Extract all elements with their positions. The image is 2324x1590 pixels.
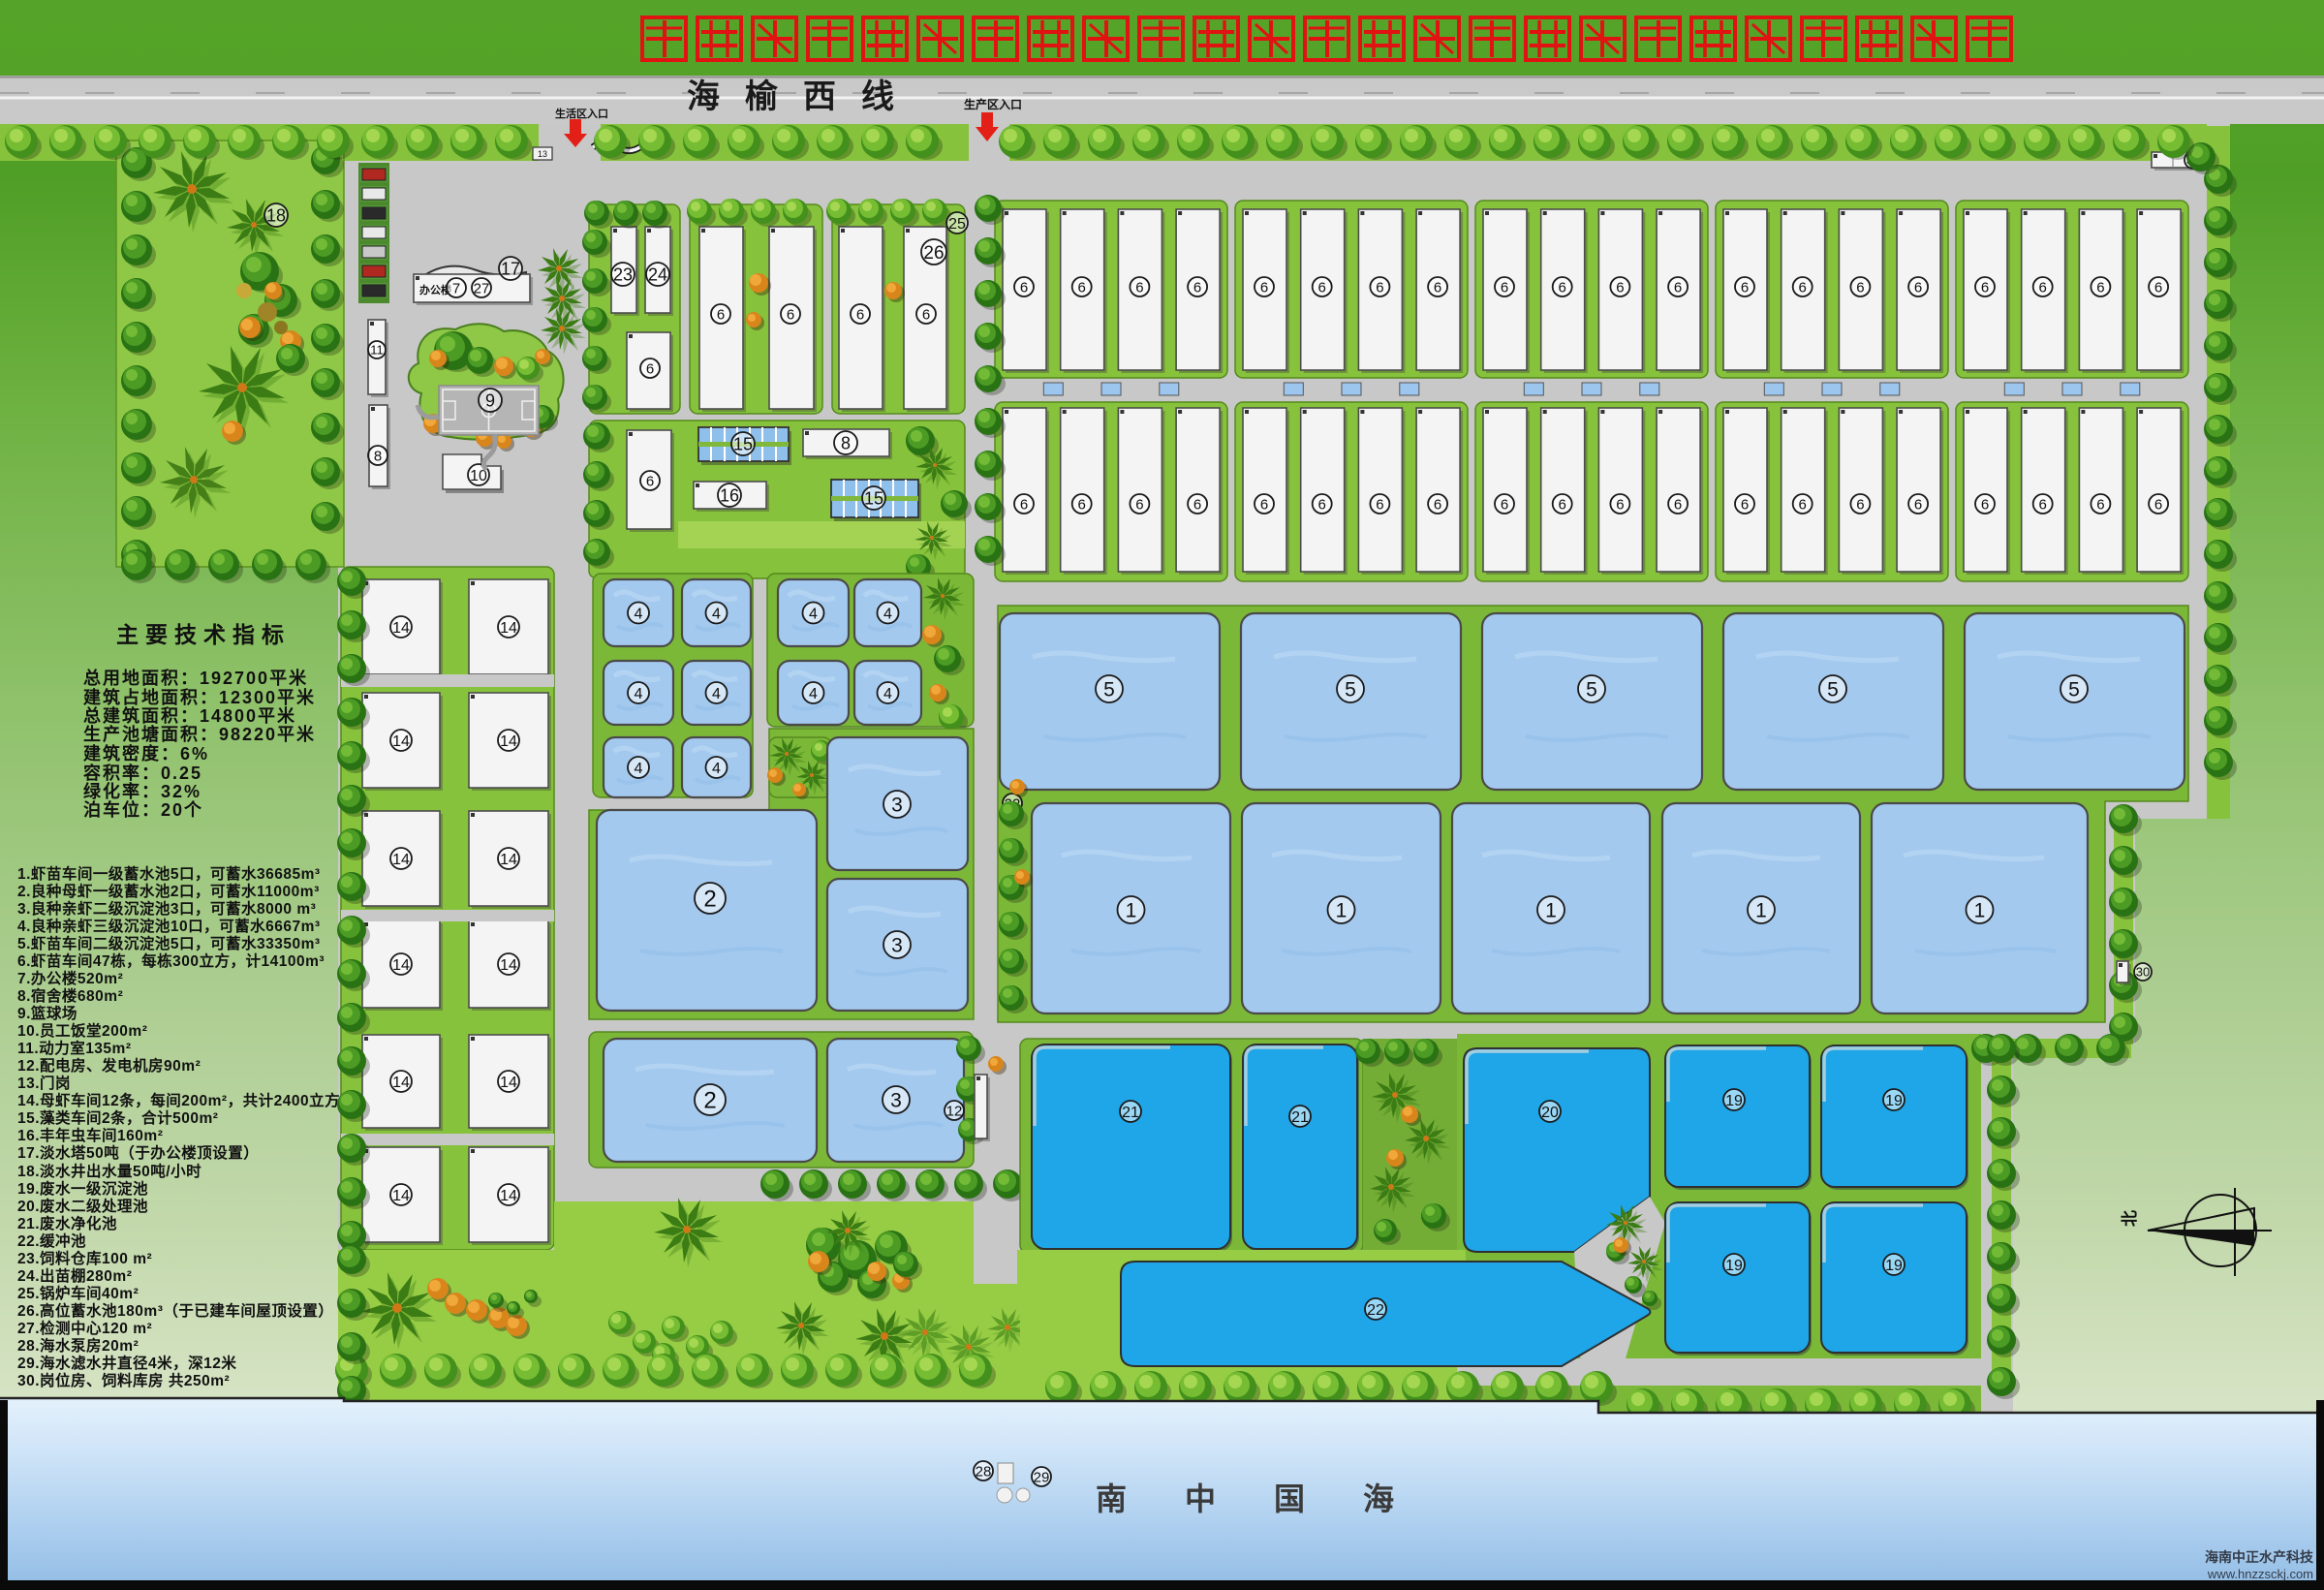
svg-text:6: 6 (1856, 279, 1864, 296)
svg-text:6: 6 (1914, 496, 1922, 513)
svg-text:建筑占地面积：12300平米: 建筑占地面积：12300平米 (83, 687, 316, 707)
svg-text:17: 17 (501, 260, 520, 279)
svg-text:14: 14 (392, 957, 410, 974)
svg-text:4: 4 (712, 606, 721, 622)
svg-text:14: 14 (500, 620, 517, 637)
svg-text:1: 1 (1126, 900, 1137, 922)
svg-text:6: 6 (1741, 496, 1749, 513)
svg-text:14: 14 (500, 733, 517, 750)
svg-text:1: 1 (1336, 900, 1348, 922)
svg-text:30.岗位房、饲料库房 共250m²: 30.岗位房、饲料库房 共250m² (17, 1371, 230, 1389)
svg-text:2: 2 (703, 1088, 716, 1114)
svg-text:14: 14 (392, 620, 410, 637)
svg-text:24.出苗棚280m²: 24.出苗棚280m² (17, 1266, 132, 1285)
svg-text:21: 21 (1122, 1105, 1139, 1121)
svg-text:容积率：0.25: 容积率：0.25 (83, 763, 202, 783)
svg-text:总用地面积：192700平米: 总用地面积：192700平米 (83, 668, 308, 688)
svg-text:6: 6 (1799, 279, 1807, 296)
svg-text:19: 19 (1885, 1258, 1903, 1274)
svg-text:建筑密度：6%: 建筑密度：6% (83, 743, 209, 764)
svg-text:6: 6 (1135, 496, 1143, 513)
svg-text:6: 6 (1616, 279, 1624, 296)
svg-text:25: 25 (948, 216, 966, 233)
svg-text:14: 14 (500, 852, 517, 868)
svg-text:2: 2 (703, 887, 716, 913)
svg-text:6: 6 (2154, 496, 2162, 513)
svg-text:16.丰年虫车间160m²: 16.丰年虫车间160m² (17, 1126, 163, 1144)
svg-text:15: 15 (864, 489, 883, 509)
svg-text:6: 6 (1501, 496, 1508, 513)
svg-text:14.母虾车间12条，每间200m²，共计2400立方: 14.母虾车间12条，每间200m²，共计2400立方 (17, 1091, 340, 1109)
svg-text:6: 6 (1020, 496, 1028, 513)
svg-text:6: 6 (787, 306, 794, 323)
svg-text:总建筑面积：14800平米: 总建筑面积：14800平米 (83, 705, 296, 726)
svg-text:6: 6 (2096, 279, 2104, 296)
svg-text:北: 北 (2121, 1210, 2139, 1227)
svg-text:6: 6 (1674, 496, 1682, 513)
svg-text:3: 3 (890, 1090, 902, 1112)
svg-text:6: 6 (856, 306, 864, 323)
svg-text:13: 13 (538, 149, 547, 159)
svg-text:14: 14 (392, 733, 410, 750)
svg-text:6: 6 (1193, 496, 1201, 513)
svg-text:南中国海: 南中国海 (1096, 1481, 1452, 1516)
svg-text:25.锅炉车间40m²: 25.锅炉车间40m² (17, 1284, 139, 1302)
svg-text:16: 16 (720, 486, 739, 506)
svg-text:20: 20 (1541, 1105, 1559, 1121)
svg-text:6: 6 (1078, 279, 1086, 296)
svg-text:4: 4 (635, 606, 643, 622)
svg-text:15: 15 (733, 435, 753, 454)
svg-text:6: 6 (1193, 279, 1201, 296)
svg-text:7: 7 (452, 280, 460, 296)
svg-text:1.虾苗车间一级蓄水池5口，可蓄水36685m³: 1.虾苗车间一级蓄水池5口，可蓄水36685m³ (17, 864, 321, 883)
svg-text:24: 24 (648, 265, 667, 285)
svg-text:8.宿舍楼680m²: 8.宿舍楼680m² (17, 986, 123, 1005)
svg-text:4: 4 (809, 606, 818, 622)
svg-text:6: 6 (2096, 496, 2104, 513)
svg-text:6: 6 (1318, 496, 1326, 513)
svg-text:6: 6 (2154, 279, 2162, 296)
svg-text:2.良种母虾一级蓄水池2口，可蓄水11000m³: 2.良种母虾一级蓄水池2口，可蓄水11000m³ (17, 882, 320, 900)
svg-text:6: 6 (1376, 496, 1383, 513)
svg-text:11: 11 (370, 343, 384, 358)
svg-text:27: 27 (474, 280, 490, 296)
svg-text:4: 4 (635, 686, 643, 702)
svg-text:23: 23 (613, 265, 633, 285)
svg-text:17.淡水塔50吨（于办公楼顶设置）: 17.淡水塔50吨（于办公楼顶设置） (17, 1143, 259, 1162)
svg-text:3.良种亲虾二级沉淀池3口，可蓄水8000 m³: 3.良种亲虾二级沉淀池3口，可蓄水8000 m³ (17, 899, 316, 918)
svg-text:19.废水一级沉淀池: 19.废水一级沉淀池 (17, 1179, 148, 1198)
svg-text:海南中正水产科技: 海南中正水产科技 (2205, 1549, 2314, 1565)
svg-text:6: 6 (1616, 496, 1624, 513)
svg-text:9.篮球场: 9.篮球场 (17, 1004, 77, 1022)
svg-text:5: 5 (1103, 679, 1115, 701)
svg-text:泊车位：20个: 泊车位：20个 (83, 799, 203, 820)
svg-text:www.hnzzsckj.com: www.hnzzsckj.com (2207, 1567, 2313, 1581)
svg-text:5: 5 (1827, 679, 1839, 701)
svg-text:14: 14 (500, 1075, 517, 1091)
svg-text:26: 26 (923, 243, 944, 264)
svg-text:绿化率：32%: 绿化率：32% (83, 781, 201, 801)
svg-text:1: 1 (1755, 900, 1767, 922)
svg-text:12: 12 (946, 1103, 963, 1119)
svg-text:6: 6 (1981, 279, 1989, 296)
svg-text:6: 6 (1020, 279, 1028, 296)
svg-text:6: 6 (1318, 279, 1326, 296)
svg-text:6: 6 (1260, 496, 1268, 513)
svg-text:4: 4 (883, 606, 892, 622)
svg-text:22.缓冲池: 22.缓冲池 (17, 1231, 86, 1250)
svg-text:15.藻类车间2条，合计500m²: 15.藻类车间2条，合计500m² (17, 1108, 218, 1127)
svg-text:10.员工饭堂200m²: 10.员工饭堂200m² (17, 1021, 147, 1040)
svg-text:生产池塘面积：98220平米: 生产池塘面积：98220平米 (83, 724, 316, 744)
svg-text:14: 14 (392, 1188, 410, 1204)
svg-text:6: 6 (1135, 279, 1143, 296)
svg-text:3: 3 (891, 795, 903, 817)
svg-text:1: 1 (1974, 900, 1986, 922)
svg-text:5: 5 (2068, 679, 2080, 701)
svg-text:28: 28 (976, 1463, 992, 1480)
svg-text:14: 14 (500, 957, 517, 974)
svg-text:6: 6 (922, 306, 930, 323)
svg-text:12.配电房、发电机房90m²: 12.配电房、发电机房90m² (17, 1056, 201, 1075)
svg-text:6: 6 (1741, 279, 1749, 296)
svg-text:4: 4 (712, 761, 721, 777)
svg-text:30: 30 (2136, 965, 2150, 980)
svg-text:6: 6 (1434, 279, 1441, 296)
svg-text:1: 1 (1545, 900, 1557, 922)
svg-text:主要技术指标: 主要技术指标 (116, 622, 291, 647)
svg-text:6: 6 (1856, 496, 1864, 513)
svg-text:21.废水净化池: 21.废水净化池 (17, 1214, 117, 1232)
svg-text:6: 6 (1434, 496, 1441, 513)
svg-text:6: 6 (1501, 279, 1508, 296)
svg-text:3: 3 (891, 935, 903, 957)
svg-text:14: 14 (392, 852, 410, 868)
svg-text:5: 5 (1586, 679, 1597, 701)
svg-text:生产区入口: 生产区入口 (964, 97, 1022, 111)
svg-text:海榆西线: 海榆西线 (687, 78, 919, 115)
svg-text:4: 4 (635, 761, 643, 777)
svg-text:14: 14 (500, 1188, 517, 1204)
svg-text:6: 6 (1078, 496, 1086, 513)
svg-text:生活区入口: 生活区入口 (555, 107, 608, 120)
svg-text:6: 6 (1260, 279, 1268, 296)
svg-text:9: 9 (485, 391, 495, 411)
svg-text:20.废水二级处理池: 20.废水二级处理池 (17, 1197, 148, 1215)
svg-text:8: 8 (374, 448, 382, 464)
svg-text:6: 6 (717, 306, 725, 323)
svg-text:27.检测中心120 m²: 27.检测中心120 m² (17, 1319, 152, 1337)
svg-text:4.良种亲虾三级沉淀池10口，可蓄水6667m³: 4.良种亲虾三级沉淀池10口，可蓄水6667m³ (17, 917, 321, 935)
svg-text:11.动力室135m²: 11.动力室135m² (17, 1039, 132, 1057)
svg-text:6: 6 (2039, 496, 2047, 513)
svg-text:7.办公楼520m²: 7.办公楼520m² (17, 969, 123, 987)
svg-text:6: 6 (646, 473, 654, 489)
svg-text:6: 6 (646, 360, 654, 377)
svg-text:29.海水滤水井直径4米，深12米: 29.海水滤水井直径4米，深12米 (17, 1354, 236, 1372)
svg-text:19: 19 (1725, 1258, 1743, 1274)
svg-text:6: 6 (1376, 279, 1383, 296)
svg-text:6: 6 (1559, 496, 1566, 513)
svg-text:6.虾苗车间47栋，每栋300立方，计14100m³: 6.虾苗车间47栋，每栋300立方，计14100m³ (17, 951, 325, 970)
svg-text:5: 5 (1345, 679, 1356, 701)
svg-text:6: 6 (1674, 279, 1682, 296)
svg-text:19: 19 (1885, 1093, 1903, 1109)
svg-text:23.饲料仓库100 m²: 23.饲料仓库100 m² (17, 1249, 152, 1267)
svg-text:28.海水泵房20m²: 28.海水泵房20m² (17, 1336, 139, 1355)
svg-text:13.门岗: 13.门岗 (17, 1074, 71, 1092)
svg-text:6: 6 (1799, 496, 1807, 513)
svg-text:4: 4 (712, 686, 721, 702)
svg-text:8: 8 (841, 434, 851, 453)
svg-text:6: 6 (1981, 496, 1989, 513)
svg-text:19: 19 (1725, 1093, 1743, 1109)
svg-text:14: 14 (392, 1075, 410, 1091)
svg-text:4: 4 (883, 686, 892, 702)
svg-text:6: 6 (1559, 279, 1566, 296)
svg-text:18: 18 (266, 206, 286, 226)
svg-text:6: 6 (2039, 279, 2047, 296)
svg-text:22: 22 (1367, 1302, 1384, 1319)
svg-text:18.淡水井出水量50吨/小时: 18.淡水井出水量50吨/小时 (17, 1162, 201, 1180)
svg-text:5.虾苗车间二级沉淀池5口，可蓄水33350m³: 5.虾苗车间二级沉淀池5口，可蓄水33350m³ (17, 934, 321, 952)
svg-text:4: 4 (809, 686, 818, 702)
svg-text:21: 21 (1291, 1109, 1309, 1126)
svg-text:29: 29 (1034, 1469, 1050, 1485)
svg-text:26.高位蓄水池180m³（于已建车间屋顶设置）: 26.高位蓄水池180m³（于已建车间屋顶设置） (17, 1301, 333, 1320)
svg-text:6: 6 (1914, 279, 1922, 296)
